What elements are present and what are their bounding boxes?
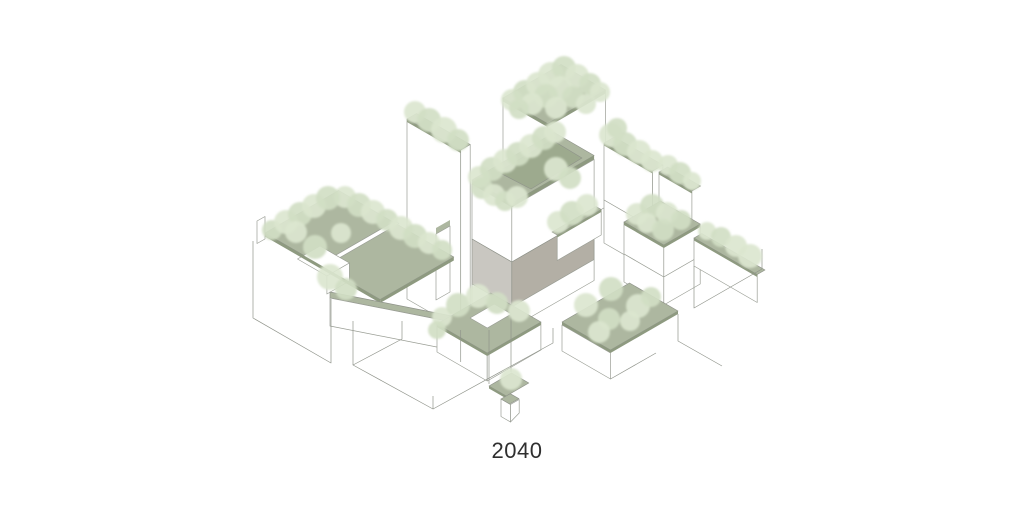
tree-canopy	[335, 278, 357, 300]
tree-canopy	[683, 172, 701, 190]
tree-canopy	[506, 186, 528, 208]
tree-canopy	[432, 240, 452, 260]
tree-canopy	[447, 129, 469, 151]
tree-canopy	[738, 244, 762, 268]
tree-canopy	[671, 210, 691, 230]
ground-outline	[611, 353, 657, 379]
tree-canopy	[545, 97, 567, 119]
tree-canopy	[576, 194, 598, 216]
tree-canopy	[576, 94, 596, 114]
tree-canopy	[285, 221, 307, 243]
tree-canopy	[509, 99, 529, 119]
year-label: 2040	[492, 438, 543, 464]
tree-canopy	[652, 219, 674, 241]
tree-canopy	[641, 287, 661, 307]
tree-canopy	[316, 186, 340, 210]
tree-canopy	[588, 321, 610, 343]
tree-canopy	[331, 223, 351, 243]
tree-canopy	[486, 292, 508, 314]
tree-canopy	[544, 121, 566, 143]
tree-canopy	[574, 293, 598, 317]
tree-canopy	[428, 321, 446, 339]
tree-canopy	[500, 368, 522, 390]
canvas: 2040	[0, 0, 1024, 523]
tree-canopy	[508, 300, 530, 322]
tree-canopy	[620, 311, 640, 331]
tree-canopy	[599, 277, 623, 301]
tree-canopy	[303, 235, 327, 259]
tree-canopy	[607, 118, 627, 138]
tree-canopy	[559, 167, 581, 189]
ground-outline	[678, 314, 722, 366]
